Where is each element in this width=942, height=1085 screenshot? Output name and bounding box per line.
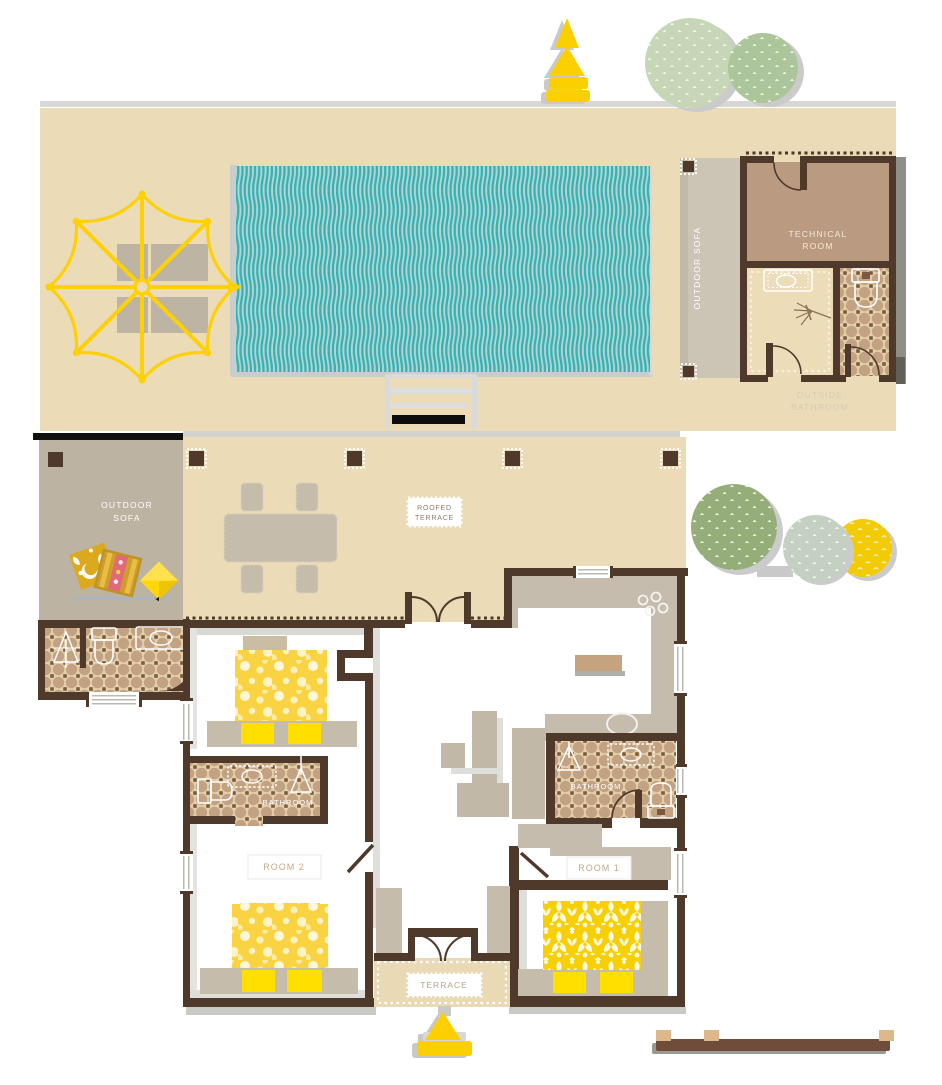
svg-text:TERRACE: TERRACE — [420, 980, 468, 990]
svg-text:ROOM 1: ROOM 1 — [578, 863, 620, 873]
svg-text:BATHROOM: BATHROOM — [791, 402, 849, 412]
svg-text:TECHNICAL: TECHNICAL — [789, 229, 848, 239]
svg-text:TERRACE: TERRACE — [415, 515, 454, 522]
svg-text:SOFA: SOFA — [113, 513, 140, 523]
svg-text:BATHROOM: BATHROOM — [571, 782, 622, 791]
svg-text:ROOFED: ROOFED — [417, 505, 452, 512]
svg-text:ROOM: ROOM — [802, 241, 833, 251]
svg-text:OUTDOOR SOFA: OUTDOOR SOFA — [692, 227, 702, 310]
svg-text:ROOM 2: ROOM 2 — [263, 862, 305, 872]
svg-text:OUTDOOR: OUTDOOR — [101, 500, 153, 510]
svg-text:BATHROOM: BATHROOM — [263, 798, 314, 807]
svg-text:OUTSIDE: OUTSIDE — [797, 390, 843, 400]
